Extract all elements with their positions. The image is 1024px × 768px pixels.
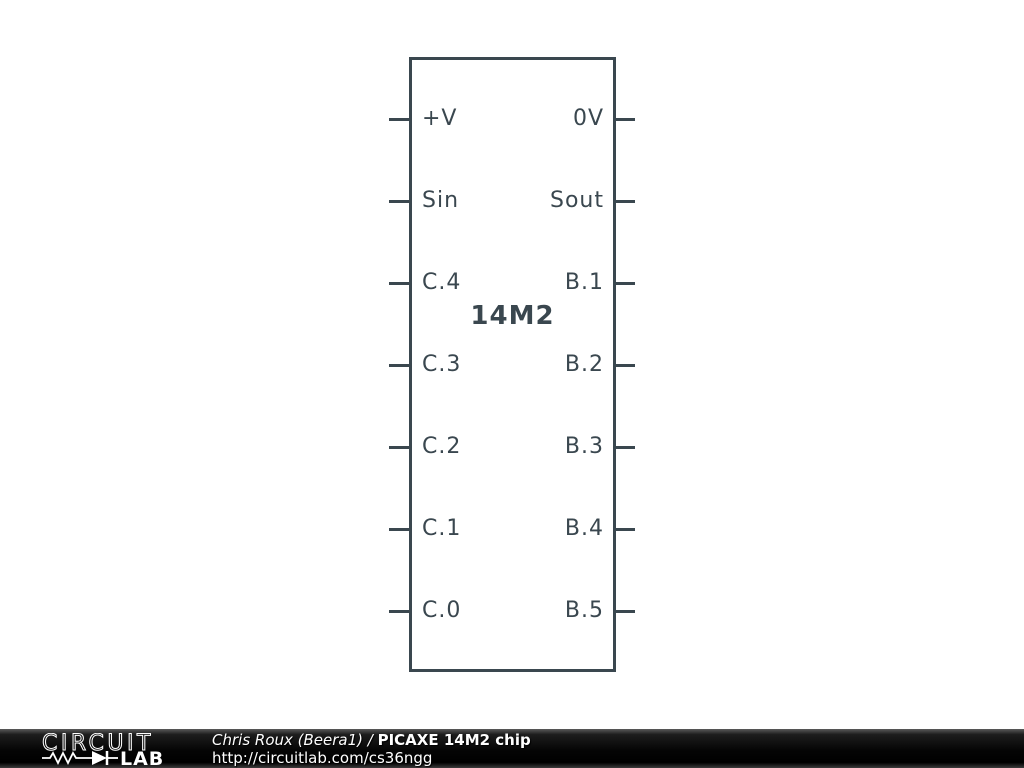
- chip-name: 14M2: [412, 300, 613, 332]
- pin-stub-b1: [614, 282, 635, 285]
- pin-stub-b5: [614, 610, 635, 613]
- pin-stub-sout: [614, 200, 635, 203]
- circuit-url: http://circuitlab.com/cs36ngg: [212, 749, 531, 767]
- pin-label-0v: 0V: [573, 105, 604, 133]
- attribution: Chris Roux (Beera1) / PICAXE 14M2 chip h…: [212, 731, 531, 767]
- pin-label-b3: B.3: [565, 433, 604, 461]
- author-text: Chris Roux (Beera1) /: [212, 731, 378, 749]
- pin-label-c0: C.0: [422, 597, 461, 625]
- pin-stub-c1: [389, 528, 410, 531]
- pin-label-plus-v: +V: [422, 105, 457, 133]
- pin-label-c1: C.1: [422, 515, 461, 543]
- pin-stub-c0: [389, 610, 410, 613]
- attribution-line: Chris Roux (Beera1) / PICAXE 14M2 chip: [212, 731, 531, 749]
- pin-label-c3: C.3: [422, 351, 461, 379]
- pin-stub-c2: [389, 446, 410, 449]
- pin-stub-sin: [389, 200, 410, 203]
- pin-label-b1: B.1: [565, 269, 604, 297]
- pin-stub-b4: [614, 528, 635, 531]
- pin-label-b5: B.5: [565, 597, 604, 625]
- pin-stub-0v: [614, 118, 635, 121]
- pin-label-sout: Sout: [550, 187, 604, 215]
- pin-label-sin: Sin: [422, 187, 459, 215]
- pin-stub-b3: [614, 446, 635, 449]
- pin-label-c4: C.4: [422, 269, 461, 297]
- pin-label-c2: C.2: [422, 433, 461, 461]
- pin-stub-plus-v: [389, 118, 410, 121]
- pin-label-b2: B.2: [565, 351, 604, 379]
- circuit-title-text: PICAXE 14M2 chip: [378, 731, 531, 749]
- pin-stub-c4: [389, 282, 410, 285]
- pin-stub-c3: [389, 364, 410, 367]
- circuitlab-logo: CIRCUIT LAB: [40, 733, 180, 765]
- schematic-canvas: 14M2 +V Sin C.4 C.3 C.2 C.1 C.0 0V Sout …: [0, 0, 1024, 768]
- pin-label-b4: B.4: [565, 515, 604, 543]
- pin-stub-b2: [614, 364, 635, 367]
- chip-body: 14M2 +V Sin C.4 C.3 C.2 C.1 C.0 0V Sout …: [409, 57, 616, 672]
- circuitlab-logo-lab-text: LAB: [120, 748, 164, 765]
- footer-bar: CIRCUIT LAB Chris Roux (Beera1) / PICAXE…: [0, 729, 1024, 768]
